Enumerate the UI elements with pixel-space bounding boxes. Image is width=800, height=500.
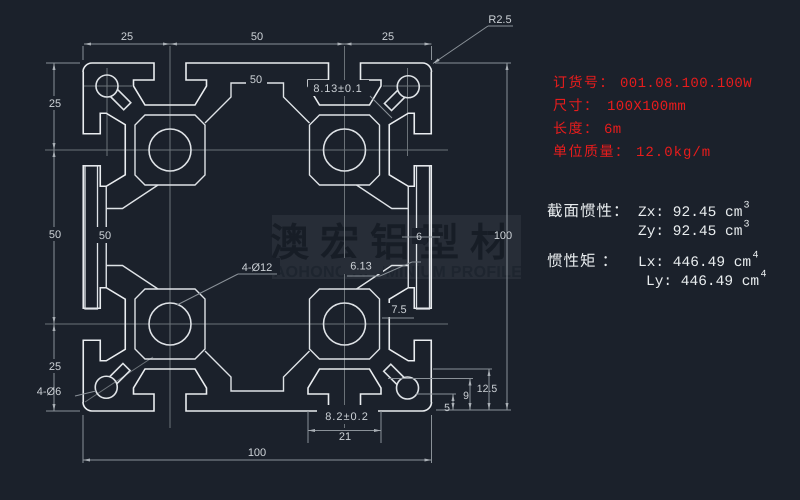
svg-text:R2.5: R2.5 — [488, 14, 511, 26]
svg-text:Zx: 92.45 cm: Zx: 92.45 cm — [638, 205, 742, 221]
svg-text:3: 3 — [744, 201, 750, 212]
svg-text:4-Ø6: 4-Ø6 — [37, 386, 61, 398]
svg-text:50: 50 — [251, 31, 263, 43]
svg-text:8.2±0.2: 8.2±0.2 — [325, 411, 369, 423]
svg-text:12.0kg/m: 12.0kg/m — [636, 145, 711, 161]
svg-text:8.13±0.1: 8.13±0.1 — [313, 83, 362, 95]
svg-text:4: 4 — [761, 270, 767, 281]
svg-text:21: 21 — [339, 431, 351, 443]
svg-text:9: 9 — [463, 390, 469, 402]
svg-text:惯性矩 ：: 惯性矩 ： — [547, 252, 618, 270]
svg-text:25: 25 — [121, 31, 133, 43]
svg-text:100: 100 — [248, 447, 266, 459]
svg-text:7.5: 7.5 — [391, 304, 406, 316]
svg-text:6m: 6m — [604, 122, 622, 138]
svg-text:Lx: 446.49 cm: Lx: 446.49 cm — [638, 255, 751, 271]
svg-text:50: 50 — [250, 74, 262, 86]
svg-text:5: 5 — [444, 402, 450, 414]
svg-text:单位质量：: 单位质量： — [553, 143, 631, 159]
svg-text:4: 4 — [753, 251, 759, 262]
svg-text:Ly: 446.49 cm: Ly: 446.49 cm — [646, 274, 759, 290]
svg-text:尺寸：: 尺寸： — [553, 97, 600, 113]
svg-text:100: 100 — [494, 230, 512, 242]
svg-text:4-Ø12: 4-Ø12 — [242, 262, 273, 274]
svg-text:Zy: 92.45 cm: Zy: 92.45 cm — [638, 224, 742, 240]
svg-text:001.08.100.100W: 001.08.100.100W — [620, 76, 752, 92]
svg-text:12.5: 12.5 — [477, 383, 498, 395]
svg-text:AOHONG ALUMINIUM PROFILE: AOHONG ALUMINIUM PROFILE — [274, 264, 522, 281]
svg-text:25: 25 — [382, 31, 394, 43]
svg-text:澳宏铝型材: 澳宏铝型材 — [270, 222, 520, 265]
svg-text:50: 50 — [99, 230, 111, 242]
svg-text:3: 3 — [744, 220, 750, 231]
svg-text:长度：: 长度： — [553, 120, 600, 136]
svg-text:截面惯性：: 截面惯性： — [547, 202, 630, 220]
svg-text:50: 50 — [49, 229, 61, 241]
svg-text:100X100mm: 100X100mm — [607, 99, 686, 115]
svg-text:25: 25 — [49, 361, 61, 373]
svg-text:6: 6 — [416, 231, 422, 243]
svg-text:订货号：: 订货号： — [553, 74, 615, 90]
svg-text:6.13: 6.13 — [350, 261, 371, 273]
svg-text:25: 25 — [49, 98, 61, 110]
